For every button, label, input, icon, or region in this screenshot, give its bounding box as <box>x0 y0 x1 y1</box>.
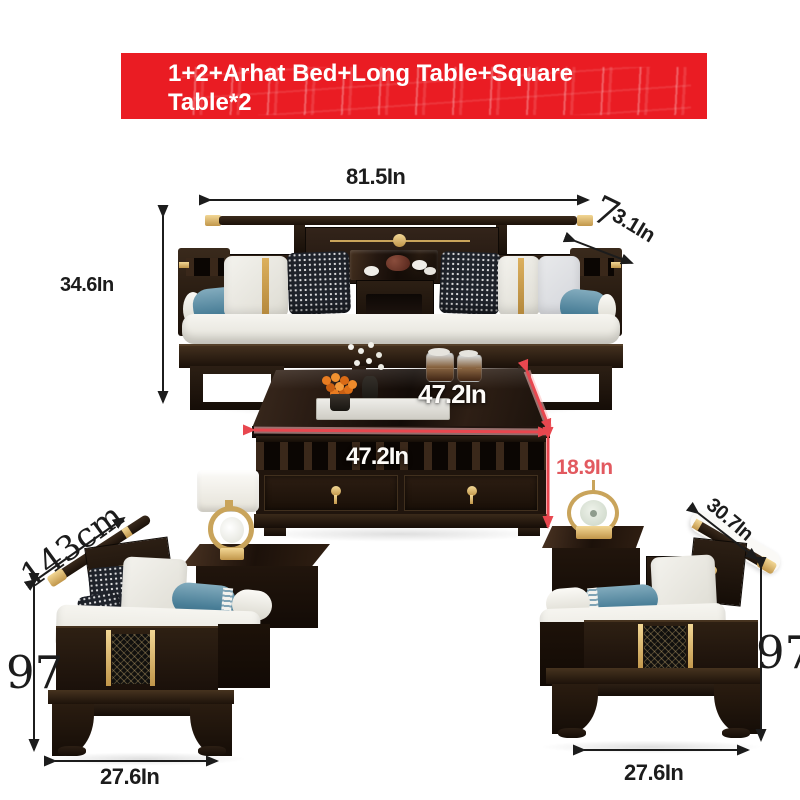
right-chair-leg-left <box>552 684 598 734</box>
left-chair-base-molding <box>48 690 234 704</box>
table-drawer-left-knob-drop <box>334 495 337 504</box>
sofa-top-rail <box>219 216 577 225</box>
right-chair-shadow <box>536 740 766 754</box>
rail-depth-label: 3.1In <box>608 204 659 248</box>
lamp-jade-disc <box>220 517 244 543</box>
glass-jar-2 <box>457 354 482 382</box>
sofa-arm-right-gold-band <box>611 262 621 268</box>
table-foot-left <box>264 528 286 536</box>
left-chair-height-label: 97 <box>6 646 63 699</box>
sofa-pillow-white-left <box>224 256 288 318</box>
lamp-base <box>220 548 244 560</box>
left-side-table-top <box>182 544 330 566</box>
left-chair-gold-strip-1 <box>106 630 111 686</box>
sofa-arm-left-gold-band <box>179 262 189 268</box>
table-top-depth-label: 47.2In <box>418 379 486 410</box>
right-chair-gold-strip-1 <box>638 624 643 670</box>
left-chair-lattice-panel <box>112 634 150 684</box>
left-chair-foot-right <box>198 746 226 756</box>
sofa-seat-cushion <box>182 314 620 344</box>
right-chair-base-molding <box>546 668 762 684</box>
ornament-jade-hole <box>590 510 597 517</box>
sofa-arm-right-slats <box>576 258 614 276</box>
sofa-pillow-dark-left <box>287 251 351 315</box>
sofa-pillow-dark-right <box>439 251 501 315</box>
glass-jar-2-lid <box>459 350 478 357</box>
banner-title-line1: 1+2+Arhat Bed+Long Table+Square <box>168 59 707 88</box>
right-chair-leg-right <box>714 684 760 734</box>
right-chair-foot-right <box>722 728 750 738</box>
right-chair-lattice-panel <box>644 626 686 670</box>
table-bottom-molding <box>254 514 548 528</box>
table-front-width-label: 47.2In <box>346 443 408 471</box>
sofa-leg-frame-left-opening <box>203 374 271 402</box>
teapot <box>386 255 410 271</box>
right-chair-foot-left <box>558 728 586 738</box>
product-spec-image: 1+2+Arhat Bed+Long Table+Square Table*2 <box>0 0 800 800</box>
glass-jar-1-lid <box>428 348 450 356</box>
tea-cup-1 <box>364 266 379 276</box>
left-chair-side-face <box>218 624 270 688</box>
right-chair-gold-strip-2 <box>688 624 693 670</box>
left-chair-gold-strip-2 <box>150 630 155 686</box>
white-flower-sprig <box>348 344 354 350</box>
ornament-base <box>576 526 612 539</box>
sofa-height-label: 34.6In <box>60 274 114 297</box>
banner-title-line2: Table*2 <box>168 88 707 117</box>
sofa-back-gold-medallion <box>393 234 406 247</box>
sofa-pillow-gold-stripe-right <box>518 258 524 314</box>
left-chair-foot-left <box>58 746 86 756</box>
table-foot-right <box>518 528 540 536</box>
left-chair-width-label: 27.6In <box>100 764 159 790</box>
title-banner: 1+2+Arhat Bed+Long Table+Square Table*2 <box>121 53 707 119</box>
sofa-leg-frame-right-opening <box>531 374 599 402</box>
sofa-width-label: 81.5In <box>346 164 405 190</box>
right-chair-height-label: 97 <box>756 626 800 679</box>
glass-jar-1 <box>426 352 454 382</box>
sofa-arm-left-slats <box>186 258 224 276</box>
table-shadow <box>250 526 550 542</box>
tea-cup-3 <box>424 267 436 275</box>
orange-flower-pot <box>330 394 350 411</box>
orange-flower-cluster <box>322 376 331 385</box>
sofa-base-rail <box>179 344 623 368</box>
right-chair-width-label: 27.6In <box>624 760 683 786</box>
table-drawer-right-knob-drop <box>470 495 473 504</box>
table-height-label: 18.9In <box>556 456 613 480</box>
sofa-pillow-gold-stripe-left <box>262 258 269 316</box>
